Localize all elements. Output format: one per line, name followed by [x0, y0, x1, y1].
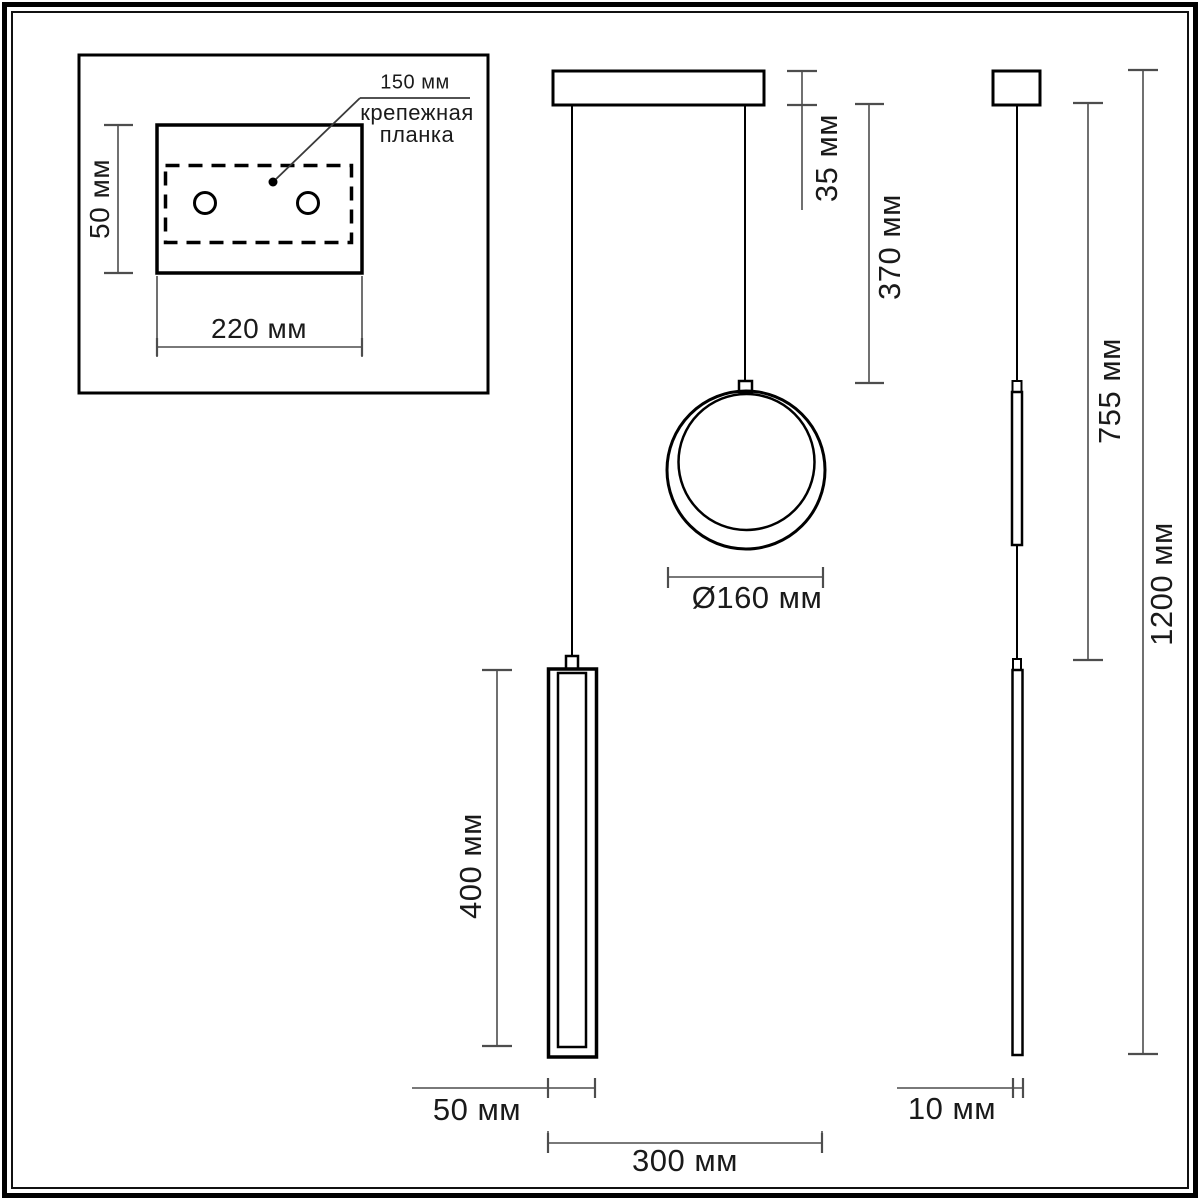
bracket-leader-dot	[269, 178, 278, 187]
tube-outer-outline	[549, 669, 597, 1057]
tube-connector	[566, 656, 578, 669]
side-view	[897, 70, 1158, 1098]
tube-inner-outline	[558, 673, 586, 1047]
plate-height-label: 50 мм	[84, 159, 116, 239]
canopy-height-label: 35 мм	[809, 114, 845, 202]
tube-length-label: 400 мм	[453, 813, 489, 919]
plate-width-label: 220 мм	[211, 313, 307, 345]
ring-profile-bar	[1012, 392, 1022, 545]
ring-outer-circle	[667, 391, 825, 549]
overall-height-label: 1200 мм	[1144, 522, 1180, 646]
mounting-hole-right	[298, 193, 319, 214]
suspension-drop-label: 370 мм	[872, 194, 908, 300]
tube-width-label: 50 мм	[433, 1092, 521, 1128]
lamp-dimension-drawing	[0, 0, 1200, 1200]
mounting-hole-left	[195, 193, 216, 214]
technical-drawing-canvas: 150 мм крепежнаяпланка 50 мм 220 мм 35 м…	[0, 0, 1200, 1200]
bracket-length-label: 150 мм	[380, 72, 449, 95]
profile-width-label: 10 мм	[908, 1091, 996, 1127]
ring-inner-circle	[679, 394, 815, 530]
drop-to-tube-label: 755 мм	[1092, 338, 1128, 444]
tube-connector-side	[1013, 659, 1021, 670]
tube-profile-bar	[1013, 670, 1023, 1055]
ceiling-plate-outline	[157, 125, 362, 273]
ring-diameter-label: Ø160 мм	[692, 580, 823, 616]
overall-width-label: 300 мм	[632, 1143, 738, 1179]
ceiling-canopy-front	[553, 71, 764, 105]
bracket-caption: крепежнаяпланка	[352, 102, 482, 146]
ceiling-canopy-side	[993, 71, 1040, 105]
bracket-caption-line2: планка	[380, 122, 454, 147]
ring-connector-side	[1013, 381, 1022, 392]
